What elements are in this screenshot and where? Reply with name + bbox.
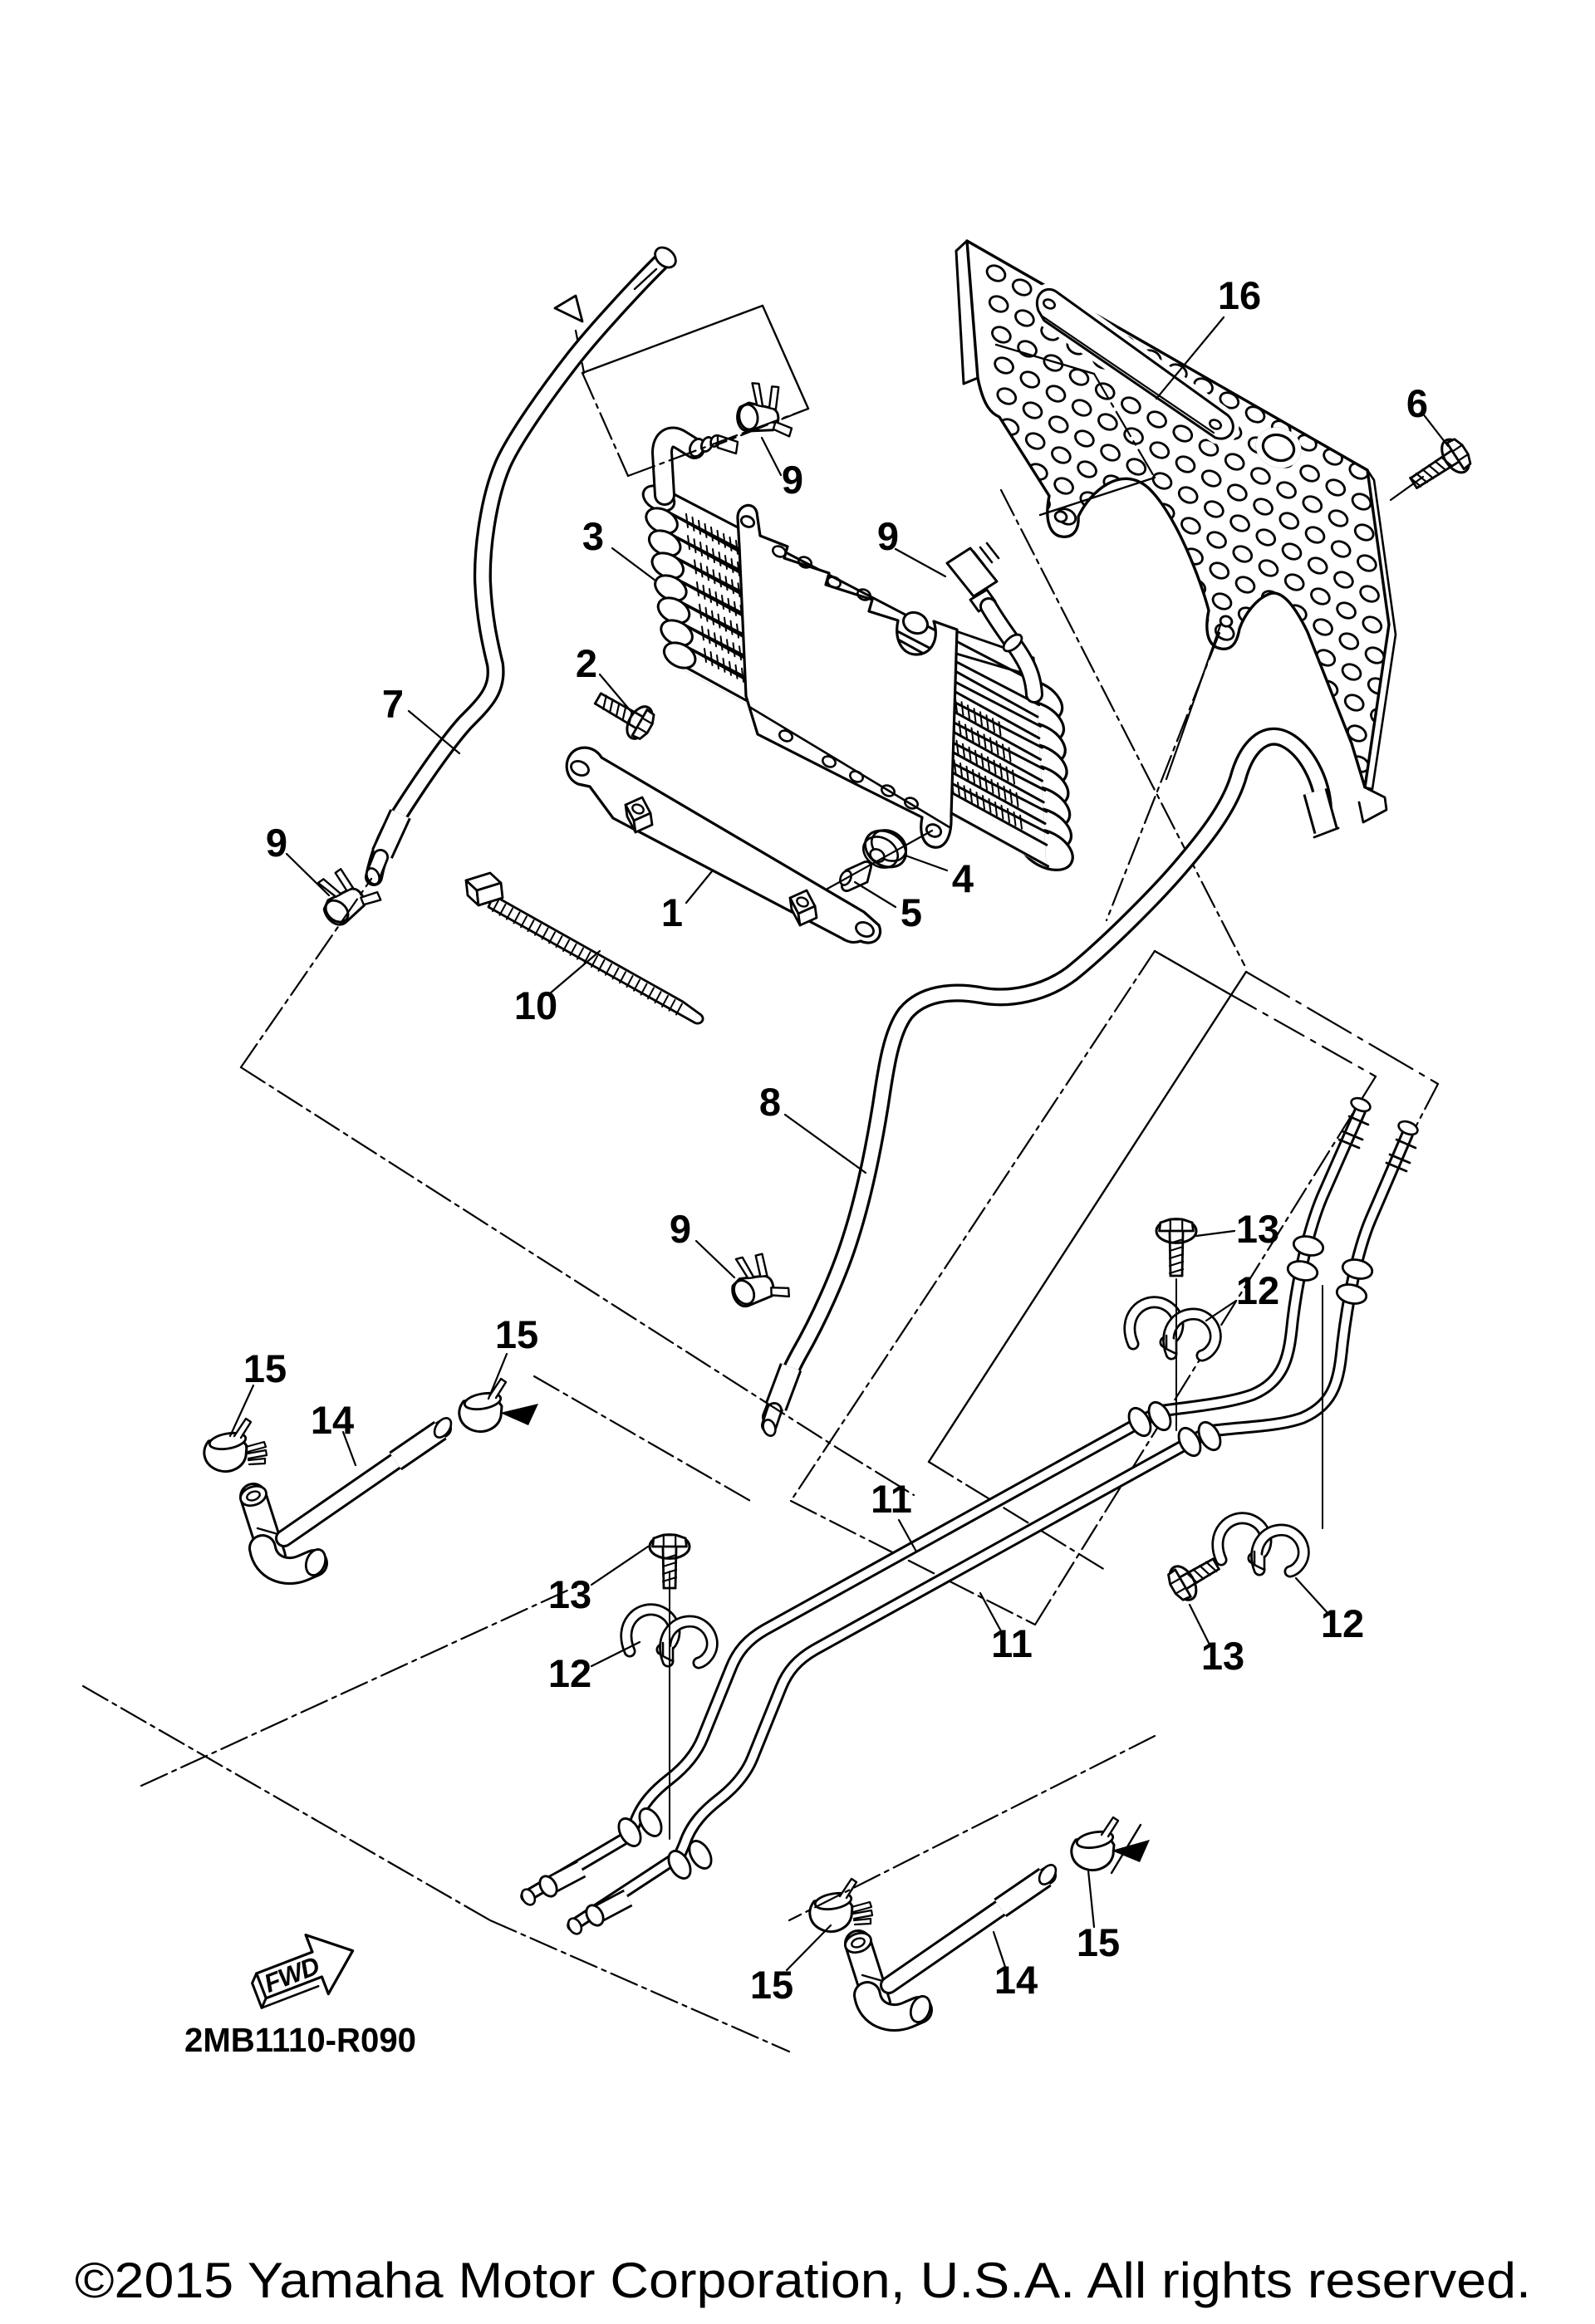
- svg-text:9: 9: [877, 514, 899, 558]
- svg-text:3: 3: [582, 514, 604, 558]
- svg-text:©2015 Yamaha Motor Corporation: ©2015 Yamaha Motor Corporation, U.S.A. A…: [75, 2253, 1531, 2308]
- svg-text:12: 12: [548, 1651, 591, 1695]
- svg-text:15: 15: [1077, 1920, 1120, 1964]
- svg-text:11: 11: [991, 1621, 1033, 1665]
- svg-text:16: 16: [1218, 273, 1261, 317]
- svg-text:2MB1110-R090: 2MB1110-R090: [184, 2021, 416, 2059]
- svg-text:15: 15: [243, 1346, 287, 1390]
- svg-text:5: 5: [901, 890, 922, 934]
- svg-text:1: 1: [661, 890, 683, 934]
- svg-text:10: 10: [514, 983, 557, 1027]
- svg-text:13: 13: [548, 1572, 591, 1616]
- svg-text:6: 6: [1406, 381, 1428, 425]
- svg-text:13: 13: [1236, 1207, 1279, 1251]
- svg-text:9: 9: [782, 458, 803, 502]
- svg-text:12: 12: [1236, 1268, 1279, 1312]
- svg-text:12: 12: [1321, 1601, 1364, 1645]
- svg-text:11: 11: [871, 1477, 912, 1521]
- svg-text:9: 9: [266, 821, 287, 865]
- svg-text:8: 8: [759, 1080, 781, 1124]
- svg-text:9: 9: [670, 1207, 691, 1251]
- svg-text:2: 2: [576, 641, 597, 685]
- svg-text:4: 4: [952, 856, 974, 900]
- svg-text:14: 14: [311, 1398, 354, 1442]
- svg-text:15: 15: [495, 1312, 538, 1356]
- svg-text:7: 7: [382, 682, 404, 726]
- svg-text:14: 14: [994, 1958, 1038, 2002]
